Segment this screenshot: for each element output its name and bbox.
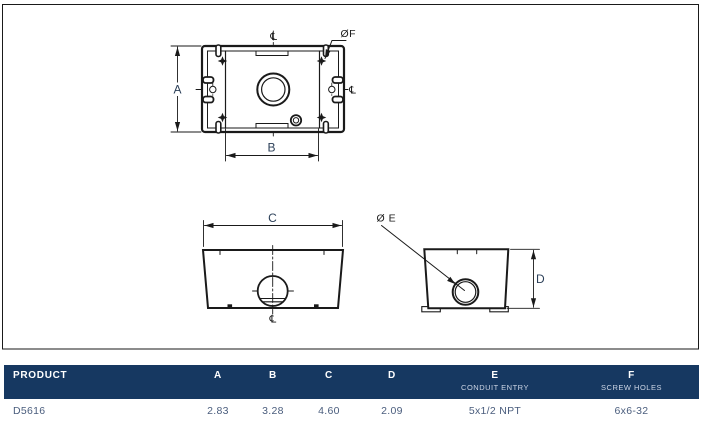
dia-f-label: ØF: [341, 28, 357, 40]
dimension-a: A: [171, 46, 201, 132]
ground-screw-outer: [291, 115, 301, 125]
col-header-f: F SCREW HOLES: [564, 365, 699, 399]
cell-d: 2.09: [358, 405, 426, 417]
col-header-a: A: [190, 365, 246, 399]
cell-product: D5616: [4, 405, 190, 417]
col-header-label: F: [628, 370, 635, 382]
col-header-e: E CONDUIT ENTRY: [426, 365, 564, 399]
top-lug: [256, 51, 288, 56]
col-header-label: D: [388, 370, 396, 382]
technical-drawing: ℄ ℄ A B ØF: [0, 0, 703, 360]
dimension-b: B: [226, 129, 319, 161]
col-header-label: C: [325, 370, 333, 382]
mount-hole-right: [329, 86, 335, 92]
col-header-label: A: [214, 370, 222, 382]
cell-f: 6x6-32: [564, 405, 699, 417]
front-view: ℄ C: [203, 211, 343, 326]
screw-slot-bottom-left: [216, 122, 221, 134]
bottom-lug: [256, 124, 288, 129]
datasheet-page: ℄ ℄ A B ØF: [0, 0, 703, 426]
drawing-area: ℄ ℄ A B ØF: [0, 0, 703, 360]
dim-c-label: C: [268, 211, 277, 225]
dimension-c: C: [204, 211, 343, 247]
side-view: Ø E D: [377, 213, 546, 312]
cell-b: 3.28: [246, 405, 300, 417]
dim-a-label: A: [173, 83, 181, 97]
mount-hole-left: [210, 86, 216, 92]
col-header-label: E: [491, 370, 498, 382]
col-header-subtitle: SCREW HOLES: [601, 383, 662, 392]
centerline-symbol-right: ℄: [348, 85, 356, 97]
centerline-symbol-bottom: ℄: [268, 314, 276, 326]
screw-slot-bottom-right: [324, 122, 329, 134]
col-header-d: D: [358, 365, 426, 399]
dia-e-label: Ø E: [377, 213, 397, 225]
side-slot-right-upper: [333, 77, 344, 83]
col-header-label: PRODUCT: [13, 370, 67, 382]
col-header-product: PRODUCT: [4, 365, 190, 399]
col-header-c: C: [300, 365, 358, 399]
dim-b-label: B: [267, 141, 275, 155]
dimension-d: D: [507, 249, 545, 308]
side-slot-left-upper: [203, 77, 214, 83]
col-header-subtitle: CONDUIT ENTRY: [461, 383, 529, 392]
spec-table-header: PRODUCT A B C D E CONDUIT ENTRY F SCREW …: [4, 365, 699, 399]
spec-table-row: D5616 2.83 3.28 4.60 2.09 5x1/2 NPT 6x6-…: [4, 405, 699, 417]
centerline-symbol-top: ℄: [269, 31, 277, 43]
top-view: ℄ ℄ A B ØF: [171, 28, 356, 161]
cell-a: 2.83: [190, 405, 246, 417]
screw-slot-top-left: [216, 45, 221, 57]
side-slot-left-lower: [203, 97, 214, 103]
cell-c: 4.60: [300, 405, 358, 417]
dim-d-label: D: [536, 272, 545, 286]
col-header-label: B: [269, 370, 277, 382]
spec-table: PRODUCT A B C D E CONDUIT ENTRY F SCREW …: [4, 365, 699, 417]
cell-e: 5x1/2 NPT: [426, 405, 564, 417]
col-header-b: B: [246, 365, 300, 399]
side-slot-right-lower: [333, 97, 344, 103]
drawing-border: [3, 5, 699, 350]
